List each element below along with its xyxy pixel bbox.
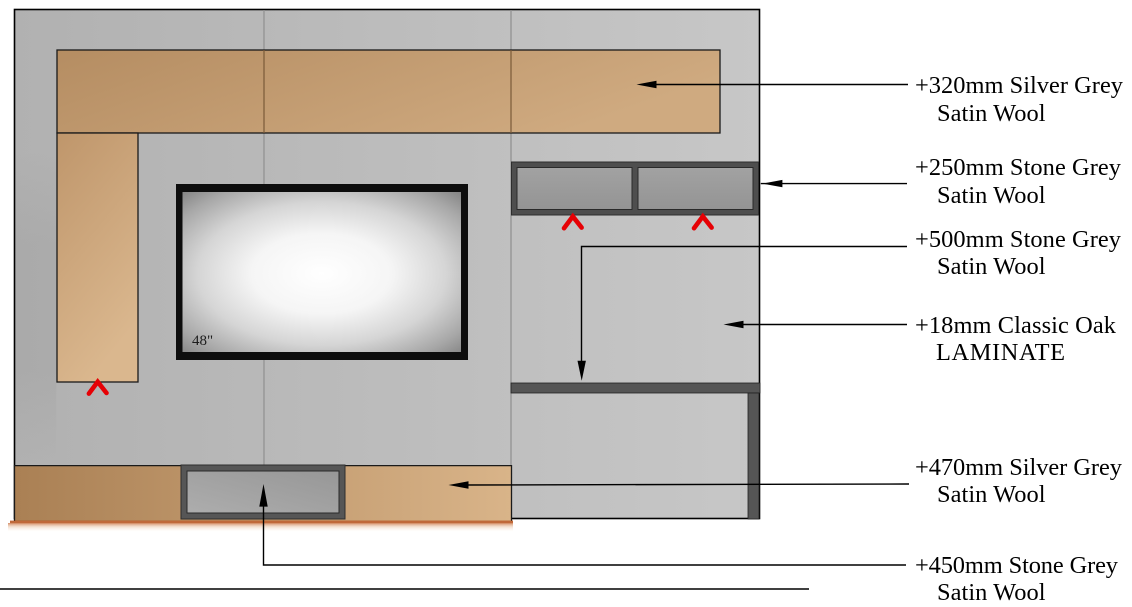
svg-text:Satin Wool: Satin Wool [937, 253, 1046, 280]
svg-text:48": 48" [192, 333, 213, 349]
svg-text:+18mm Classic Oak: +18mm Classic Oak [915, 312, 1117, 339]
svg-text:+500mm Stone Grey: +500mm Stone Grey [915, 226, 1122, 253]
svg-text:Satin Wool: Satin Wool [937, 100, 1046, 127]
svg-text:+470mm Silver Grey: +470mm Silver Grey [915, 454, 1123, 481]
svg-text:+450mm Stone Grey: +450mm Stone Grey [915, 552, 1119, 579]
svg-text:Satin Wool: Satin Wool [937, 182, 1046, 209]
svg-text:+320mm Silver Grey: +320mm Silver Grey [915, 72, 1124, 99]
svg-text:Satin Wool: Satin Wool [937, 481, 1046, 508]
svg-text:+250mm Stone Grey: +250mm Stone Grey [915, 154, 1122, 181]
svg-text:LAMINATE: LAMINATE [936, 339, 1065, 366]
svg-text:Satin Wool: Satin Wool [937, 579, 1046, 606]
